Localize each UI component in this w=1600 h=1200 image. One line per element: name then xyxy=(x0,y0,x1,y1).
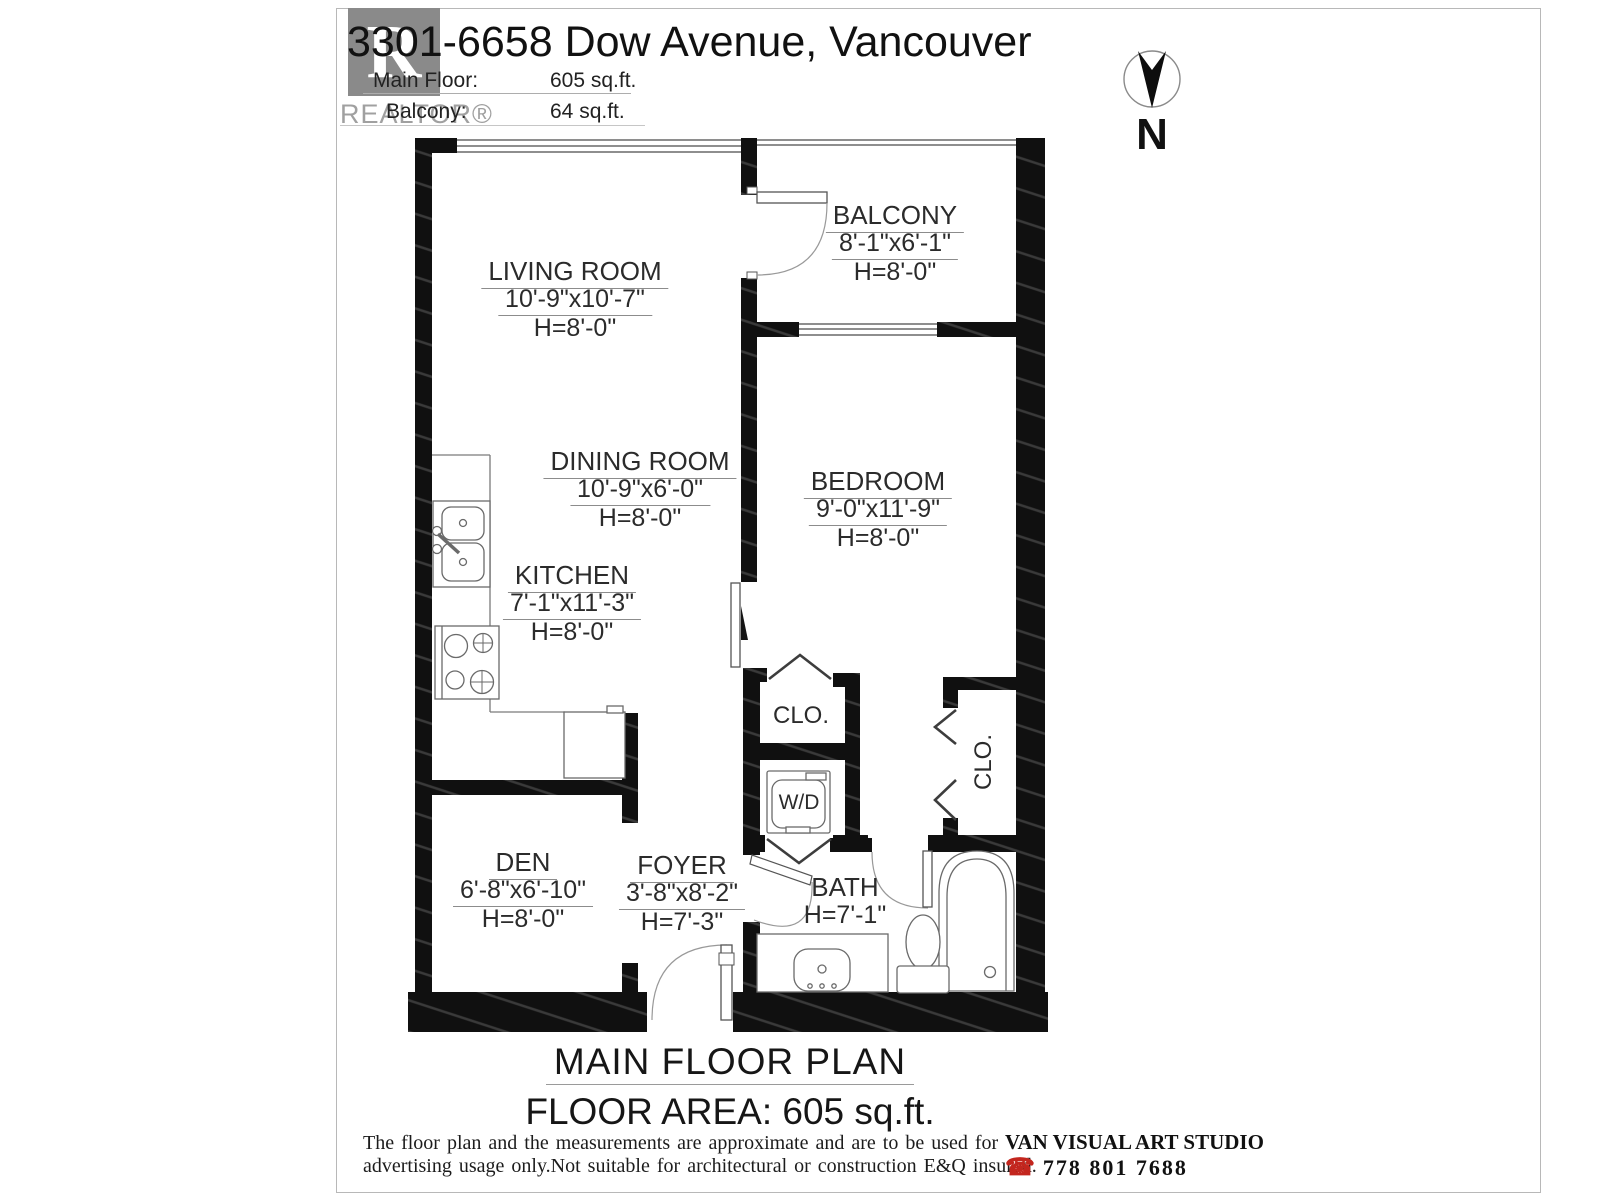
foyer-bath-door xyxy=(750,855,812,926)
wall-closet2-left-top xyxy=(943,677,958,708)
studio-phone-number: 778 801 7688 xyxy=(1043,1155,1188,1180)
washer-dryer-label: W/D xyxy=(779,791,820,815)
room-label-closet-2: CLO. xyxy=(970,734,998,790)
room-label-den: DEN 6'-8"x6'-10" H=8'-0" xyxy=(453,847,593,934)
wall-bottom-left xyxy=(408,992,647,1032)
studio-name: VAN VISUAL ART STUDIO xyxy=(1005,1130,1264,1155)
compass-icon xyxy=(1124,51,1180,108)
plan-title: MAIN FLOOR PLAN xyxy=(554,1041,906,1083)
room-label-closet-1: CLO. xyxy=(773,702,829,730)
wall-closet2-bath xyxy=(928,835,1045,852)
wall-den-stub xyxy=(622,963,638,993)
wall-top-stub xyxy=(415,138,457,153)
balcony-door xyxy=(747,187,827,279)
balcony-railing xyxy=(757,140,1016,145)
bifold-closet1-top xyxy=(769,655,831,679)
wall-balcony-bottom-right xyxy=(937,322,1016,337)
room-label-kitchen: KITCHEN 7'-1"x11'-3" H=8'-0" xyxy=(503,560,641,647)
bath-vanity xyxy=(757,934,888,992)
bifold-closet2-lower xyxy=(935,780,956,820)
disclaimer-line-1: The floor plan and the measurements are … xyxy=(363,1132,998,1155)
floor-area-total: FLOOR AREA: 605 sq.ft. xyxy=(525,1091,934,1133)
entry-door xyxy=(652,945,734,1020)
studio-phone-row: ☎778 801 7688 xyxy=(1005,1153,1188,1182)
wall-closet-top-stub xyxy=(743,668,767,682)
stove xyxy=(435,626,499,699)
wall-bath-top xyxy=(830,838,872,852)
bathtub xyxy=(939,851,1014,991)
bedroom-door xyxy=(731,583,748,667)
wall-closet-right xyxy=(845,673,860,837)
room-label-foyer: FOYER 3'-8"x8'-2" H=7'-3" xyxy=(619,850,745,937)
floor-plan-drawing xyxy=(0,0,1600,1200)
kitchen-sink xyxy=(433,501,491,587)
wall-closet-left-upper xyxy=(743,668,760,855)
room-label-dining-room: DINING ROOM 10'-9"x6'-0" H=8'-0" xyxy=(543,446,736,533)
wall-kitchen-den xyxy=(415,780,635,795)
bifold-closet2-upper xyxy=(935,710,956,744)
wall-right xyxy=(1016,138,1045,1032)
room-label-bath: BATH H=7'-1" xyxy=(804,872,886,930)
wall-closet-divider xyxy=(743,743,845,760)
window-living-room xyxy=(457,140,741,152)
phone-icon: ☎ xyxy=(1005,1155,1035,1181)
window-bedroom-balcony xyxy=(799,324,937,335)
bifold-closet1-bottom xyxy=(767,839,831,863)
wall-left xyxy=(415,138,432,1032)
wall-balcony-bottom-left xyxy=(741,322,799,337)
wall-closet-bottom-stub xyxy=(743,835,765,852)
fridge xyxy=(564,706,625,778)
room-label-living-room: LIVING ROOM 10'-9"x10'-7" H=8'-0" xyxy=(481,256,668,343)
plan-title-underline xyxy=(546,1084,914,1085)
wall-middle-top xyxy=(741,138,757,195)
room-label-bedroom: BEDROOM 9'-0"x11'-9" H=8'-0" xyxy=(804,466,952,553)
wall-bottom-right xyxy=(733,992,1048,1032)
wall-closet-right-top-stub xyxy=(833,673,860,687)
room-label-balcony: BALCONY 8'-1"x6'-1" H=8'-0" xyxy=(826,200,964,287)
disclaimer-line-2: advertising usage only.Not suitable for … xyxy=(363,1155,1037,1178)
